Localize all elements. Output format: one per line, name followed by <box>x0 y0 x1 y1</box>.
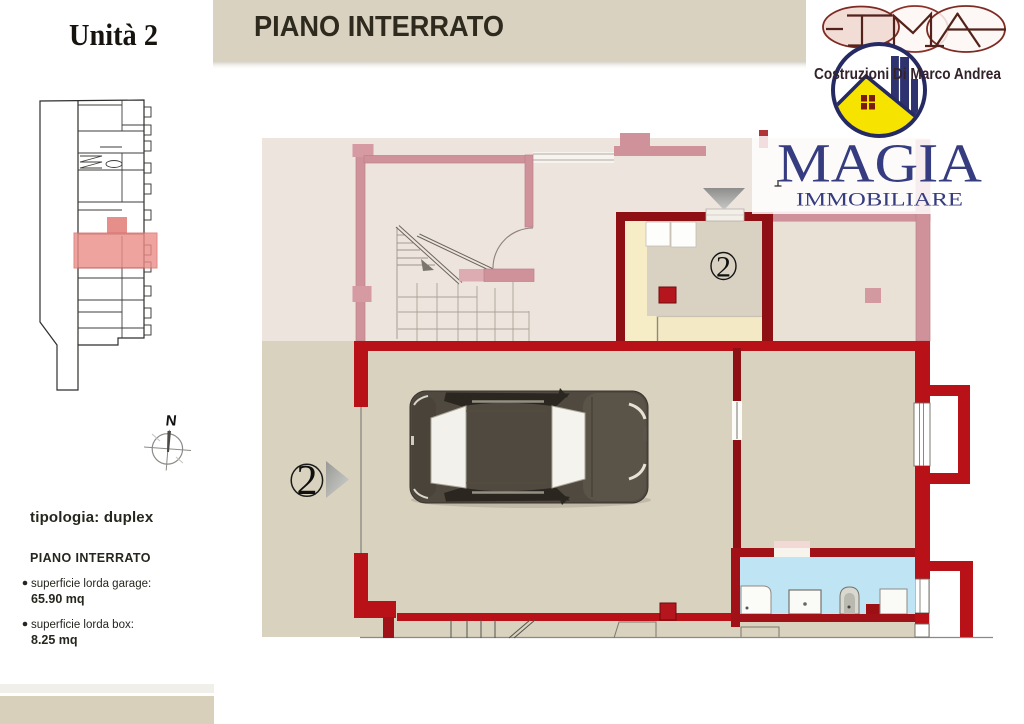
svg-text:N: N <box>165 413 178 430</box>
svg-text:MAGIA: MAGIA <box>777 133 982 194</box>
svg-text:superficie lorda box:: superficie lorda box: <box>31 619 134 631</box>
svg-text:2: 2 <box>297 458 318 504</box>
svg-text:2: 2 <box>716 251 731 284</box>
svg-text:Unità 2: Unità 2 <box>69 17 158 52</box>
svg-text:PIANO INTERRATO: PIANO INTERRATO <box>30 551 151 565</box>
svg-text:IMMOBILIARE: IMMOBILIARE <box>796 191 963 211</box>
svg-text:Costruzioni Di Marco Andrea: Costruzioni Di Marco Andrea <box>814 66 1001 83</box>
svg-text:8.25 mq: 8.25 mq <box>31 633 78 647</box>
svg-text:tipologia: duplex: tipologia: duplex <box>30 509 154 526</box>
svg-text:PIANO INTERRATO: PIANO INTERRATO <box>254 11 504 43</box>
svg-text:65.90 mq: 65.90 mq <box>31 592 85 606</box>
svg-text:superficie lorda garage:: superficie lorda garage: <box>31 578 151 590</box>
